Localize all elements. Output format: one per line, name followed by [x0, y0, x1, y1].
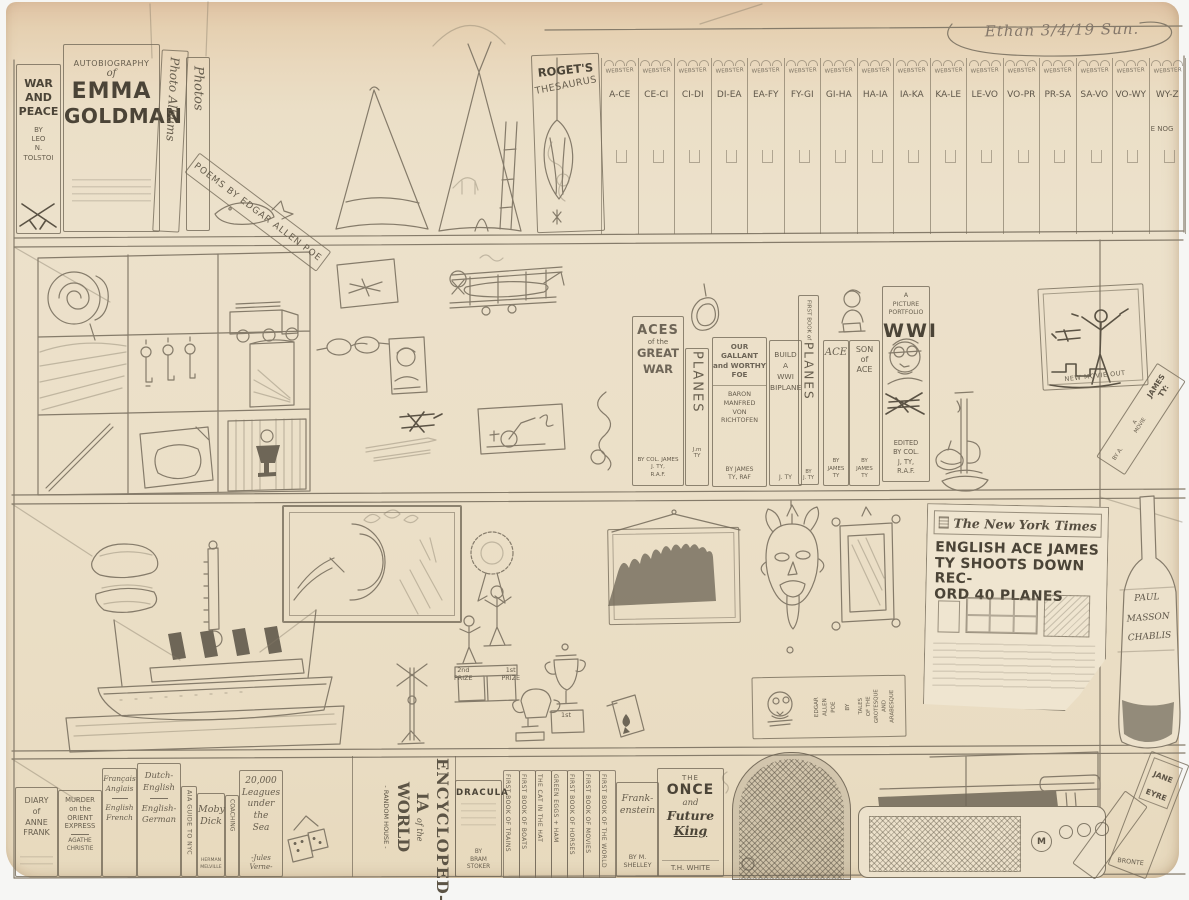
webster-volume-label: WEBSTER	[784, 67, 820, 75]
book-orient-express: MURDER on the ORIENT EXPRESS AGATHE CHRI…	[58, 790, 102, 877]
webster-volume-range: A-CE	[602, 90, 638, 100]
webster-volume-label: WEBSTER	[675, 67, 711, 75]
book-title: MURDER on the ORIENT EXPRESS	[59, 796, 101, 831]
book-title: FIRST BOOK OF MOVIES	[584, 771, 591, 853]
webster-volume: WEBSTER GI-HA	[821, 58, 858, 234]
book-author: HERMAN MELVILLE	[198, 858, 224, 871]
photo-box-small	[937, 600, 960, 632]
first-prize-label: 1st PRIZE	[501, 666, 520, 683]
book-rogets-thesaurus: ROGET'S THESAURUS	[531, 53, 605, 233]
thin-book-spine: FIRST BOOK OF THE WORLD	[599, 770, 616, 878]
book-anne-frank: DIARY of ANNE FRANK	[15, 787, 58, 877]
spine-notch	[689, 150, 700, 163]
encyclopedia-rotated-text: ENCYCLOPED- IA of the WORLD - RANDOM HOU…	[356, 758, 452, 876]
book-coaching: COACHING	[225, 795, 239, 877]
webster-volume-label: WEBSTER	[894, 67, 930, 75]
book-title: JANE EYRE	[1144, 769, 1174, 803]
webster-volume-label: WEBSTER	[711, 67, 747, 75]
comic-cell	[990, 615, 1014, 632]
webster-volume: WEBSTER DI-EA	[712, 58, 749, 234]
webster-volume-label: WEBSTER	[602, 67, 638, 75]
webster-volume-range: CI-DI	[675, 90, 711, 100]
scallop-doodle	[1077, 60, 1113, 66]
webster-volume: WEBSTER WY-Z	[1150, 58, 1187, 234]
comic-cell	[967, 598, 991, 615]
book-title: PLANES	[802, 342, 816, 401]
signature: Ethan 3/4/19 Sun.	[948, 18, 1176, 41]
title-line1: ENCYCLOPED-	[433, 758, 452, 876]
radio-speaker-grille	[869, 816, 1021, 872]
spine-notch	[1018, 150, 1029, 163]
scallop-doodle	[821, 60, 857, 66]
title-line: King	[658, 823, 723, 838]
book-title-line: GREAT	[633, 346, 683, 360]
book-author: J. TY	[770, 474, 801, 481]
newspaper-clipping: The New York Times ENGLISH ACE JAMES TY …	[923, 503, 1109, 712]
wine-bottle-label: PAUL MASSON CHABLIS	[1115, 583, 1181, 646]
movie-poster: NEW MOVIE OUT	[1037, 283, 1148, 390]
book-title: FIRST BOOK OF THE WORLD	[600, 771, 607, 868]
scallop-doodle	[1004, 60, 1040, 66]
book-title: Photos	[191, 66, 206, 111]
scallop-doodle	[748, 60, 784, 66]
radio-drawing: M	[858, 806, 1106, 878]
webster-volume: WEBSTER EA-FY	[748, 58, 785, 234]
webster-volume: WEBSTER A-CE	[602, 58, 639, 234]
webster-volume-range: KA-LE	[931, 90, 967, 100]
webster-volume: WEBSTER SA-VO	[1077, 58, 1114, 234]
comic-cell	[1013, 599, 1037, 616]
book-title: WWI	[883, 320, 929, 342]
book-title: GREEN EGGS + HAM	[552, 771, 559, 843]
webster-dictionary-set: WEBSTER A-CE WEBSTER CE-CI WEBSTER CI-DI	[601, 58, 1186, 234]
book-author: BY A.	[1112, 447, 1125, 462]
thin-book-spine: FIRST BOOK OF TRAINS	[503, 770, 520, 878]
book-author: BY JAMES TY, RAF	[713, 466, 766, 482]
book-title-line: of	[64, 68, 159, 79]
webster-volume: WEBSTER VO-WY	[1113, 58, 1150, 234]
book-title: COACHING	[229, 799, 236, 831]
title-of-the: of the	[415, 818, 424, 841]
divider	[71, 834, 89, 835]
book-poe-tales: EDGAR ALLEN POE BY TALES OF THE GROTESQU…	[751, 675, 906, 740]
title-line: ONCE	[658, 782, 723, 798]
webster-volume: WEBSTER VO-PR	[1004, 58, 1041, 234]
book-wwi-portfolio: A PICTURE PORTFOLIO WWI EDITED BY COL. J…	[882, 286, 930, 482]
webster-volume-range: IA-KA	[894, 90, 930, 100]
framed-soldiers-photo	[607, 527, 741, 625]
book-editor: EDITED BY COL. J, TY, R.A.F.	[883, 439, 929, 476]
spine-notch	[1091, 150, 1102, 163]
book-title: 20,000 Leagues under the Sea	[240, 776, 282, 834]
webster-volume-label: WEBSTER	[1149, 67, 1185, 75]
logo-letter: M	[1037, 837, 1046, 847]
picture-inner-frame	[612, 532, 735, 620]
spine-notch	[1127, 150, 1138, 163]
scallop-doodle	[894, 60, 930, 66]
webster-volume-range: SA-VO	[1077, 90, 1113, 100]
book-once-future-king: THE ONCE and Future King T.H. WHITE	[657, 768, 724, 877]
signature-text: Ethan 3/4/19 Sun.	[985, 20, 1140, 41]
divider	[112, 798, 128, 799]
webster-volume: WEBSTER PR-SA	[1040, 58, 1077, 234]
book-war-and-peace: WAR AND PEACE BY LEO N. TOLSTOI	[16, 64, 61, 234]
divider	[150, 798, 168, 799]
title-line: THE	[658, 774, 723, 782]
spine-notch	[835, 150, 846, 163]
scanned-drawing: WAR AND PEACE BY LEO N. TOLSTOI AUTOBIOG…	[0, 0, 1189, 900]
spine-notch	[1054, 150, 1065, 163]
book-photos: Photos	[186, 57, 210, 231]
book-title: OUR GALLANT and WORTHY FOE	[713, 342, 766, 379]
book-title: DIARY of ANNE FRANK	[16, 796, 57, 839]
book-first-book-planes: FIRST BOOK of PLANES BY J. TY	[798, 295, 819, 485]
book-title: Moby Dick	[198, 804, 224, 829]
webster-volume-label: WEBSTER	[857, 67, 893, 75]
radio-brand-logo: M	[1031, 831, 1052, 852]
thin-book-spine: THE CAT IN THE HAT	[535, 770, 552, 878]
masthead-row: The New York Times	[934, 510, 1102, 538]
webster-volume: WEBSTER KA-LE	[931, 58, 968, 234]
book-title: Frank- enstein	[617, 793, 658, 818]
webster-volume-range: GI-HA	[821, 90, 857, 100]
book-frankenstein: Frank- enstein BY M. SHELLEY	[616, 782, 659, 877]
book-title: TALES OF THE GROTESQUE AND ARABESQUE	[858, 689, 898, 724]
scallop-doodle	[785, 60, 821, 66]
book-title-line: AUTOBIOGRAPHY	[64, 59, 159, 68]
dict-bottom: English- German	[138, 803, 180, 827]
thin-books-row: FIRST BOOK OF TRAINS FIRST BOOK OF BOATS…	[503, 770, 615, 878]
webster-volume-range: VO-PR	[1004, 90, 1040, 100]
book-gallant-foe: OUR GALLANT and WORTHY FOE BARON MANFRED…	[712, 337, 767, 487]
book-title: PLANES	[690, 351, 705, 413]
scallop-doodle	[639, 60, 675, 66]
webster-volume-label: WEBSTER	[1003, 67, 1039, 75]
book-author: BY JAMES TY	[850, 458, 879, 481]
webster-volume: WEBSTER IA-KA	[894, 58, 931, 234]
thin-book-spine: GREEN EGGS + HAM	[551, 770, 568, 878]
book-author: AGATHE CHRISTIE	[59, 838, 101, 854]
scallop-doodle	[1150, 60, 1186, 66]
dict-top: Français Anglais	[103, 774, 136, 794]
webster-volume: WEBSTER FY-GI	[785, 58, 822, 234]
webster-volume-label: WEBSTER	[967, 67, 1003, 75]
thin-book-spine: FIRST BOOK OF HORSES	[567, 770, 584, 878]
book-title-line: GOLDMAN	[64, 104, 159, 128]
spine-notch	[945, 150, 956, 163]
book-author: EDGAR ALLEN POE	[813, 697, 839, 717]
prize-labels: 2nd PRIZE 1st PRIZE	[454, 666, 520, 683]
book-moby-dick: Moby Dick HERMAN MELVILLE	[197, 793, 225, 877]
spine-notch	[981, 150, 992, 163]
webster-volume-range: CE-CI	[639, 90, 675, 100]
thin-book-spine: FIRST BOOK OF BOATS	[519, 770, 536, 878]
publisher: - RANDOM HOUSE -	[382, 758, 390, 876]
picture-inner-frame	[289, 512, 455, 616]
book-planes: PLANES J.m TY	[685, 348, 709, 486]
spine-notch	[762, 150, 773, 163]
book-title: ACE	[824, 347, 848, 358]
book-encyclopedia: ENCYCLOPED- IA of the WORLD - RANDOM HOU…	[352, 756, 456, 877]
webster-volume-range: FY-GI	[785, 90, 821, 100]
arched-door-drawing	[732, 752, 851, 880]
comic-cell	[1013, 616, 1037, 633]
book-author: BY J. TY	[803, 469, 814, 481]
dict-top: Dutch- English	[138, 770, 180, 794]
article-text-shading	[932, 642, 1095, 689]
label-text: 1st	[561, 711, 571, 719]
webster-volume-range: VO-WY	[1113, 90, 1149, 100]
book-title: FIRST BOOK OF TRAINS	[504, 771, 511, 852]
spine-shading	[72, 179, 151, 207]
webster-volume-label: WEBSTER	[930, 67, 966, 75]
spine-notch	[616, 150, 627, 163]
book-ace: ACE BY JAMES TY	[823, 340, 849, 486]
title-line: and	[658, 798, 723, 808]
book-french-english-dict: Français Anglais English French	[102, 768, 137, 877]
door-crosshatch	[739, 759, 844, 879]
book-author: T.H. WHITE	[662, 860, 719, 872]
note-text: E NOG	[1151, 125, 1174, 133]
title-ia: IA	[413, 793, 432, 813]
book-title: FIRST BOOK OF BOATS	[520, 771, 527, 850]
webster-volume: WEBSTER LE-VO	[967, 58, 1004, 234]
book-title-line: WAR	[633, 362, 683, 376]
book-son-of-ace: SON of ACE BY JAMES TY	[849, 340, 880, 486]
book-author: BY LEO N. TOLSTOI	[17, 126, 60, 162]
spine-notch	[799, 150, 810, 163]
spine-notch	[653, 150, 664, 163]
small-first-label: 1st	[552, 702, 580, 721]
book-title: WAR AND PEACE	[17, 77, 60, 118]
book-title: Photo Albums	[163, 57, 181, 142]
flag-icon	[939, 516, 949, 528]
thin-book-spine: FIRST BOOK OF MOVIES	[583, 770, 600, 878]
book-title-line: EMMA	[64, 79, 159, 104]
scallop-doodle	[1113, 60, 1149, 66]
photo-box-pilot	[1043, 595, 1090, 638]
book-author: BY COL. JAMES J. TY, R.A.F.	[633, 457, 683, 480]
book-author: BY BRAM STOKER	[456, 849, 501, 872]
book-author: -Jules Verne-	[240, 854, 282, 872]
spine-notch	[872, 150, 883, 163]
book-dracula: DRACULA BY BRAM STOKER	[455, 780, 502, 877]
webster-volume-label: WEBSTER	[638, 67, 674, 75]
book-author: BRONTE	[1111, 855, 1151, 868]
radio-knob	[1077, 823, 1091, 837]
webster-volume-label: WEBSTER	[1040, 67, 1076, 75]
framed-horseshoe-picture	[282, 505, 462, 623]
book-aces-great-war: ACES of the GREAT WAR BY COL. JAMES J. T…	[632, 316, 684, 486]
webster-volume: WEBSTER CE-CI	[639, 58, 676, 234]
webster-volume-range: DI-EA	[712, 90, 748, 100]
comic-cell	[966, 615, 990, 632]
scallop-doodle	[602, 60, 638, 66]
webster-volume-label: WEBSTER	[748, 67, 784, 75]
book-emma-goldman: AUTOBIOGRAPHY of EMMA GOLDMAN	[63, 44, 160, 232]
book-subject: BARON MANFRED VON RICHTOFEN	[713, 385, 766, 425]
label-text: PAUL MASSON CHABLIS	[1126, 592, 1171, 643]
book-author: BY M. SHELLEY	[617, 853, 658, 870]
book-aia-guide: AIA GUIDE TO NYC	[181, 786, 197, 877]
spine-notch	[1164, 150, 1175, 163]
masthead-title: The New York Times	[953, 515, 1097, 533]
webster-volume-label: WEBSTER	[821, 67, 857, 75]
book-title: SON of ACE	[850, 345, 879, 375]
spine-shading	[20, 856, 53, 870]
book-dutch-german-dict: Dutch- English English- German	[137, 763, 181, 877]
webster-volume: WEBSTER CI-DI	[675, 58, 712, 234]
book-title: JAMES TY:	[1146, 373, 1175, 405]
book-title: THE CAT IN THE HAT	[536, 771, 543, 842]
spine-notch	[908, 150, 919, 163]
book-author: J.m TY	[686, 447, 708, 459]
comic-cell	[990, 598, 1014, 615]
spine-notch	[726, 150, 737, 163]
comic-strip-grid	[965, 597, 1038, 634]
webster-volume-range: WY-Z	[1150, 90, 1186, 100]
book-pre-title: A PICTURE PORTFOLIO	[883, 292, 929, 318]
book-title: AIA GUIDE TO NYC	[186, 790, 193, 855]
book-author: BY JAMES TY	[824, 458, 848, 481]
scallop-doodle	[675, 60, 711, 66]
webster-volume-range: EA-FY	[748, 90, 784, 100]
title-world: WORLD	[394, 782, 413, 852]
book-subtitle: A MOVIE	[1128, 414, 1148, 435]
scallop-doodle	[712, 60, 748, 66]
book-by: BY	[845, 703, 851, 710]
dict-bottom: English French	[103, 803, 136, 823]
webster-volume-range: PR-SA	[1040, 90, 1076, 100]
scallop-doodle	[1040, 60, 1076, 66]
spine-shading	[461, 803, 496, 829]
title-line2: IA of the WORLD	[394, 758, 432, 876]
scallop-doodle	[858, 60, 894, 66]
book-title: BUILD A WWI BIPLANE	[770, 349, 801, 393]
book-title-line: of the	[633, 338, 683, 346]
book-title: FIRST BOOK OF HORSES	[568, 771, 575, 855]
title-line: Future	[658, 808, 723, 823]
second-prize-label: 2nd PRIZE	[454, 666, 473, 683]
book-title: DRACULA	[456, 788, 501, 798]
book-20000-leagues: 20,000 Leagues under the Sea -Jules Vern…	[239, 770, 283, 877]
book-title-line: ACES	[633, 323, 683, 338]
webster-end-note: E NOG	[1136, 116, 1188, 135]
webster-volume-label: WEBSTER	[1076, 67, 1112, 75]
webster-volume: WEBSTER HA-IA	[858, 58, 895, 234]
book-title-pre: FIRST BOOK of	[806, 300, 812, 340]
scallop-doodle	[967, 60, 1003, 66]
scallop-doodle	[931, 60, 967, 66]
webster-volume-range: LE-VO	[967, 90, 1003, 100]
radio-knob	[1059, 825, 1073, 839]
webster-volume-label: WEBSTER	[1113, 67, 1149, 75]
webster-volume-range: HA-IA	[858, 90, 894, 100]
